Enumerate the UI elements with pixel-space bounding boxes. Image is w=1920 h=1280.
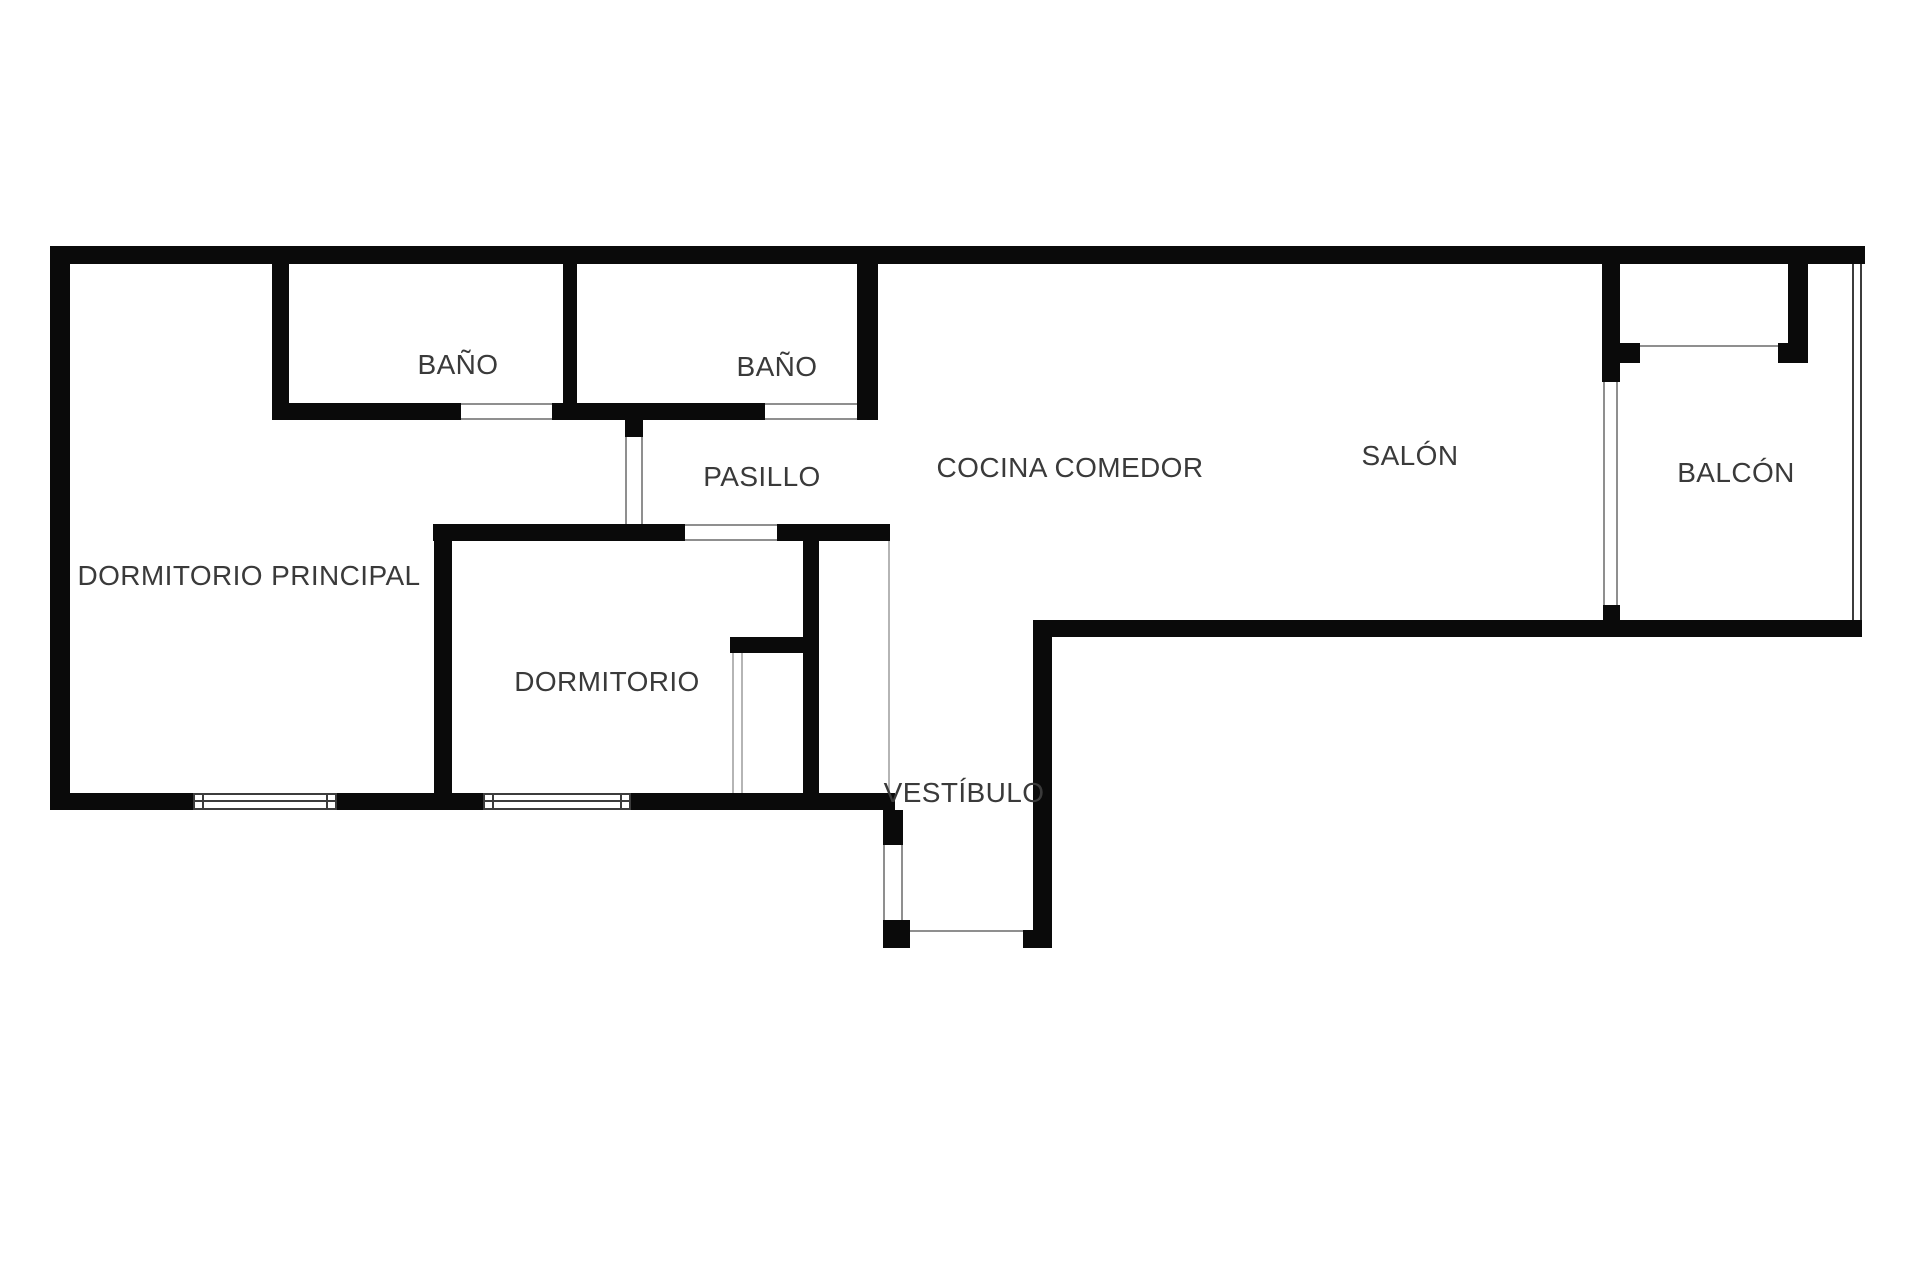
wall-dormitorio-top-left bbox=[433, 524, 685, 541]
floor-plan-canvas: DORMITORIO PRINCIPALBAÑOBAÑOPASILLODORMI… bbox=[0, 0, 1920, 1280]
room-label-bano-2: BAÑO bbox=[737, 351, 818, 383]
wall-balcon-right bbox=[1788, 264, 1808, 343]
wall-balcon-right-foot bbox=[1778, 343, 1808, 363]
wall-left bbox=[50, 264, 70, 810]
window-dormitorio-w-cap-r bbox=[620, 795, 622, 808]
room-label-dormitorio: DORMITORIO bbox=[514, 666, 699, 698]
window-dormitorio-w-mid bbox=[485, 800, 629, 802]
wall-vestibulo-left-upper bbox=[883, 810, 903, 845]
window-dormitorio-principal-w-cap-r bbox=[326, 795, 328, 808]
wall-banos-bottom-middle bbox=[552, 403, 765, 420]
wall-top bbox=[50, 246, 1865, 264]
room-label-dormitorio-principal: DORMITORIO PRINCIPAL bbox=[77, 560, 420, 592]
balcon-glazing-line-outer bbox=[1860, 264, 1862, 620]
room-label-pasillo: PASILLO bbox=[703, 461, 820, 493]
window-dormitorio bbox=[483, 793, 631, 810]
wall-bedrooms-bottom-b bbox=[337, 793, 483, 810]
dormitorio-closet-front-line-a bbox=[732, 653, 734, 793]
vestibulo-side-opening bbox=[883, 845, 903, 920]
wall-closet-divider bbox=[803, 541, 819, 793]
dormitorio-principal-door-opening bbox=[625, 437, 643, 524]
wall-balcon-divider-stub bbox=[1620, 343, 1640, 363]
wall-dormitorio-top-right bbox=[777, 524, 890, 541]
wall-balcon-door-stub bbox=[1603, 605, 1620, 620]
window-dormitorio-principal-w-mid bbox=[195, 800, 335, 802]
balcon-sliding-door-line-right bbox=[1616, 382, 1618, 605]
wall-salon-bottom bbox=[1033, 620, 1862, 637]
wall-balcon-divider-top bbox=[1602, 264, 1620, 382]
wall-bedrooms-bottom-c bbox=[631, 793, 895, 810]
balcon-window-sill-line bbox=[1640, 345, 1778, 347]
vestibulo-closet-front-line bbox=[888, 541, 890, 792]
wall-bano2-right bbox=[857, 264, 878, 420]
window-dormitorio-principal bbox=[193, 793, 337, 810]
room-label-cocina-comedor: COCINA COMEDOR bbox=[937, 452, 1204, 484]
room-label-salon: SALÓN bbox=[1362, 440, 1459, 472]
wall-bedrooms-bottom-a bbox=[50, 793, 193, 810]
wall-bano1-bottom bbox=[272, 403, 461, 420]
wall-pasillo-door-stub bbox=[625, 415, 643, 437]
dormitorio-door-opening bbox=[685, 524, 777, 541]
wall-bano1-left bbox=[272, 264, 289, 420]
bano2-door-opening bbox=[765, 403, 857, 420]
wall-dormitorio-divider bbox=[434, 541, 452, 810]
room-label-vestibulo: VESTÍBULO bbox=[884, 777, 1045, 809]
wall-vestibulo-left-lower bbox=[883, 920, 910, 948]
window-dormitorio-principal-w-cap-l bbox=[202, 795, 204, 808]
room-label-bano-1: BAÑO bbox=[418, 349, 499, 381]
balcon-glazing-line-inner bbox=[1852, 264, 1854, 620]
bano1-door-opening bbox=[461, 403, 552, 420]
balcon-sliding-door-line-left bbox=[1603, 382, 1605, 605]
wall-bano-divider bbox=[563, 264, 577, 403]
wall-closet-stub bbox=[730, 637, 803, 653]
dormitorio-closet-front-line-b bbox=[741, 653, 743, 793]
window-dormitorio-w-cap-l bbox=[492, 795, 494, 808]
entrance-opening bbox=[910, 930, 1023, 948]
room-label-balcon: BALCÓN bbox=[1677, 457, 1795, 489]
